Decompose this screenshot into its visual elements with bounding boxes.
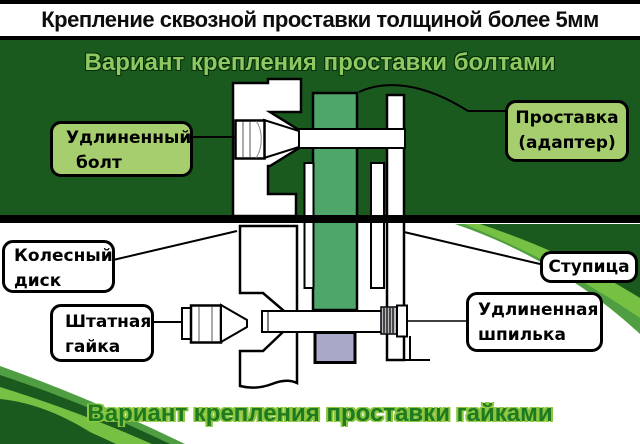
pointer-spacer-adapter bbox=[359, 85, 505, 111]
wheel-disk-bottom-shape bbox=[240, 226, 297, 388]
callout-wheel-disk: Колесный диск bbox=[2, 240, 115, 293]
callout-standard-nut: Штатная гайка bbox=[50, 304, 154, 362]
callout-spacer-adapter: Проставка (адаптер) bbox=[505, 100, 629, 162]
callout-hub: Ступица bbox=[540, 251, 638, 283]
spacer-shape bbox=[313, 93, 357, 310]
pointer-wheel-disk bbox=[113, 231, 237, 260]
callout-extended-bolt-line1: Удлиненный bbox=[66, 128, 191, 148]
callout-extended-stud-line1: Удлиненная bbox=[478, 300, 598, 320]
disk-ring-left-shape bbox=[305, 163, 314, 288]
callout-hub-label: Ступица bbox=[548, 257, 629, 277]
center-bore-shape bbox=[315, 333, 355, 363]
callout-spacer-adapter-line1: Проставка bbox=[515, 108, 618, 128]
callout-standard-nut-line2: гайка bbox=[65, 335, 151, 360]
callout-extended-bolt-line2: болт bbox=[76, 151, 190, 176]
callout-standard-nut-line1: Штатная bbox=[65, 312, 151, 332]
infographic-spacer-mounting: Крепление сквозной проставки толщиной бо… bbox=[0, 0, 640, 444]
hub-ring-shape bbox=[371, 163, 384, 288]
nuts-variant-heading: Вариант крепления проставки гайками bbox=[0, 400, 640, 428]
callout-wheel-disk-line1: Колесный bbox=[14, 246, 113, 266]
callout-wheel-disk-line2: диск bbox=[14, 269, 112, 294]
callout-spacer-adapter-line2: (адаптер) bbox=[508, 131, 626, 156]
hub-outline-bottom bbox=[404, 336, 430, 360]
standard-nut-shape bbox=[182, 305, 247, 343]
callout-extended-bolt: Удлиненный болт bbox=[50, 121, 193, 177]
callout-extended-stud: Удлиненная шпилька bbox=[466, 292, 603, 352]
bolts-variant-heading: Вариант крепления проставки болтами bbox=[0, 49, 640, 77]
callout-extended-stud-line2: шпилька bbox=[478, 323, 600, 348]
extended-stud-shape bbox=[262, 306, 407, 337]
section-divider bbox=[0, 215, 640, 223]
